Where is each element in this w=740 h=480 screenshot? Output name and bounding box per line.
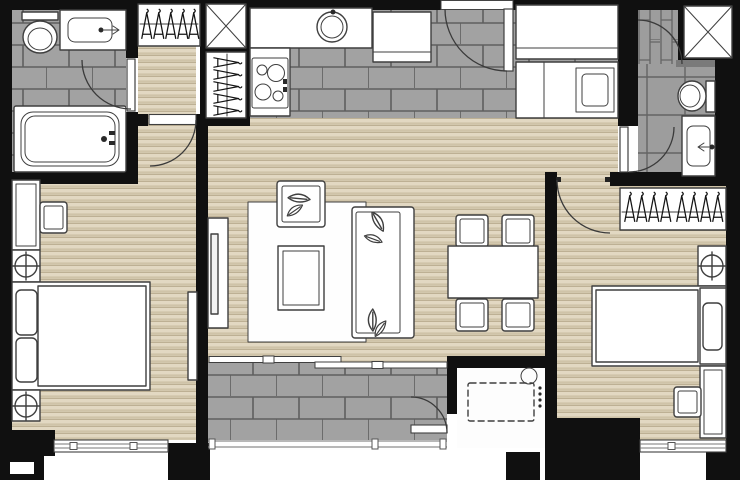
wall-left bbox=[0, 10, 12, 456]
column-bedroom1-balcony bbox=[168, 443, 210, 480]
wall-block-bottom-mid bbox=[545, 418, 640, 480]
wall-bottom-left-thick bbox=[0, 430, 55, 456]
bedroom2-window-frame bbox=[640, 440, 726, 452]
sliding-handle-2 bbox=[372, 362, 383, 369]
armchair bbox=[277, 181, 325, 227]
floor-plan bbox=[0, 0, 740, 480]
bed2-pillow bbox=[703, 303, 722, 350]
vanity2-faucet-dot bbox=[710, 145, 715, 150]
ac-dot-3 bbox=[538, 398, 541, 401]
wall-bathroom1-right-lower bbox=[126, 112, 138, 176]
toilet2-tank bbox=[706, 81, 715, 112]
refrigerator bbox=[373, 12, 431, 62]
bedroom1-door-leaf bbox=[149, 115, 196, 125]
wall-corner-inset bbox=[10, 462, 34, 474]
wall-bedroom1-living bbox=[196, 114, 208, 444]
vanity1-faucet-dot bbox=[99, 28, 104, 33]
bathtub-tap-1 bbox=[109, 131, 115, 135]
living-tv bbox=[211, 234, 218, 314]
ac-dot-4 bbox=[538, 404, 541, 407]
balcony-ac-door-leaf bbox=[411, 425, 447, 433]
toilet1-tank bbox=[22, 12, 58, 20]
coffee-table bbox=[278, 246, 324, 310]
bed2-mattress bbox=[596, 290, 698, 362]
wall-bathroom2-right bbox=[715, 56, 740, 178]
bed1-pillow-1 bbox=[16, 290, 37, 335]
entry-door-threshold bbox=[441, 1, 513, 10]
counter-washer bbox=[516, 62, 618, 118]
ac-dot-2 bbox=[538, 392, 541, 395]
sliding-handle-1 bbox=[263, 356, 274, 363]
bedroom1-wall-tv bbox=[188, 292, 197, 380]
ac-ledge-floor bbox=[457, 368, 545, 448]
railing-post-1 bbox=[209, 439, 215, 449]
bedroom1-window-handle-1 bbox=[70, 443, 77, 450]
balcony-railing bbox=[208, 439, 447, 449]
bedroom2-door-hinge-b bbox=[605, 177, 610, 182]
wall-ac-ledge-top bbox=[447, 356, 545, 368]
wall-bathroom2-left-upper bbox=[618, 10, 638, 126]
hob-knob-2 bbox=[283, 87, 287, 92]
wall-ac-ledge-left bbox=[447, 368, 457, 414]
wall-living-bedroom2 bbox=[545, 172, 557, 422]
hob-knob-1 bbox=[283, 79, 287, 84]
bed1-pillow-2 bbox=[16, 338, 37, 382]
bathroom1-door-leaf bbox=[127, 59, 135, 111]
bedroom1-window-handle-2 bbox=[130, 443, 137, 450]
column-ac-ledge bbox=[506, 452, 540, 480]
wall-bathroom1-right-upper bbox=[126, 10, 138, 58]
entry-door-leaf bbox=[504, 9, 513, 71]
railing-lines bbox=[208, 441, 447, 447]
entry-cabinet bbox=[516, 5, 618, 59]
floor-plan-drawing bbox=[0, 0, 740, 480]
kitchen-counter-top bbox=[250, 8, 372, 48]
bedroom2-window bbox=[640, 440, 726, 452]
bathroom2-door-leaf bbox=[620, 127, 628, 172]
bathtub-drain bbox=[101, 136, 107, 142]
wall-bedroom2-top bbox=[610, 172, 740, 186]
wall-bedroom1-door-stub bbox=[138, 114, 148, 126]
bed1-mattress bbox=[38, 286, 146, 386]
kitchen-faucet bbox=[331, 10, 336, 15]
dining-table bbox=[448, 246, 538, 298]
railing-post-3 bbox=[440, 439, 446, 449]
master-bedroom-floor-strip bbox=[138, 126, 196, 184]
bathtub-tap-2 bbox=[109, 141, 115, 145]
railing-post-2 bbox=[372, 439, 378, 449]
wardrobe-bedroom2 bbox=[620, 188, 726, 230]
bedroom1-window bbox=[54, 440, 168, 452]
ac-dot-1 bbox=[538, 386, 541, 389]
bedroom2-window-handle bbox=[668, 443, 675, 450]
wall-bottom-right-corner bbox=[706, 450, 740, 480]
wall-right bbox=[726, 178, 740, 458]
